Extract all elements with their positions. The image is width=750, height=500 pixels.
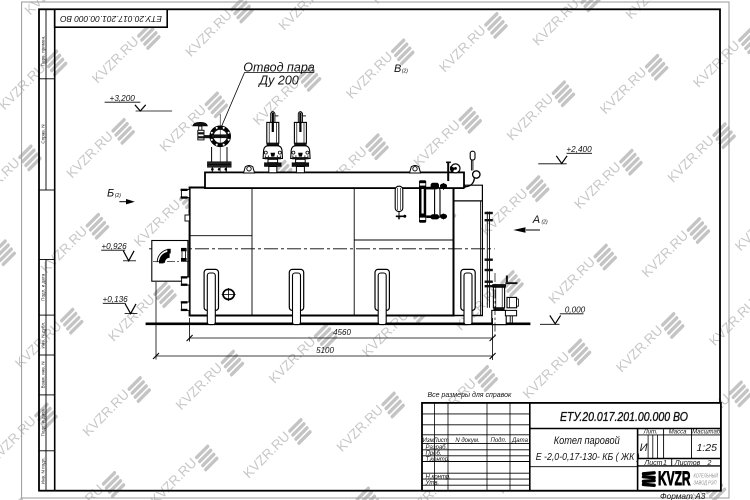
svg-text:Изм: Изм bbox=[423, 438, 434, 444]
svg-text:Подп. и дата: Подп. и дата bbox=[41, 409, 46, 437]
svg-text:KVZR.RU: KVZR.RU bbox=[436, 22, 489, 75]
svg-text:KVZR.RU: KVZR.RU bbox=[520, 349, 573, 402]
svg-text:KVZR.RU: KVZR.RU bbox=[504, 91, 557, 144]
svg-text:KVZR.RU: KVZR.RU bbox=[63, 128, 116, 181]
svg-text:И: И bbox=[640, 442, 648, 454]
svg-text:KVZR.RU: KVZR.RU bbox=[623, 0, 676, 22]
svg-text:Т.контр.: Т.контр. bbox=[426, 457, 450, 463]
svg-text:Справ. N: Справ. N bbox=[41, 124, 46, 143]
svg-text:Масса: Масса bbox=[669, 430, 687, 436]
svg-text:Инв. N подл.: Инв. N подл. bbox=[41, 457, 46, 484]
svg-text:Е -2,0-0,17-130- КБ ( ЖК ): Е -2,0-0,17-130- КБ ( ЖК ) bbox=[536, 451, 640, 463]
svg-text:В: В bbox=[394, 63, 401, 75]
svg-text:Подп.: Подп. bbox=[491, 438, 507, 444]
svg-text:+0,136: +0,136 bbox=[102, 295, 128, 304]
svg-text:Лит.: Лит. bbox=[643, 430, 658, 436]
svg-text:KVZR.RU: KVZR.RU bbox=[664, 133, 717, 186]
svg-text:Взам. инв. N: Взам. инв. N bbox=[41, 361, 46, 388]
svg-text:1: 1 bbox=[663, 460, 667, 467]
svg-text:KVZR.RU: KVZR.RU bbox=[240, 429, 293, 482]
svg-text:Котел паровой: Котел паровой bbox=[554, 435, 620, 447]
svg-text:N докум.: N докум. bbox=[455, 438, 479, 444]
svg-text:Листов: Листов bbox=[674, 460, 701, 467]
svg-text:KVZR.RU: KVZR.RU bbox=[266, 334, 319, 387]
svg-text:KVZR.RU: KVZR.RU bbox=[639, 228, 692, 281]
svg-text:Масштаб: Масштаб bbox=[692, 430, 721, 436]
svg-text:КОТЕЛЬНЫЙ: КОТЕЛЬНЫЙ bbox=[694, 472, 719, 480]
svg-text:KVZR.RU: KVZR.RU bbox=[732, 201, 750, 254]
svg-text:Инв. N дубл.: Инв. N дубл. bbox=[41, 322, 46, 349]
svg-text:KVZR.RU: KVZR.RU bbox=[0, 60, 48, 113]
svg-text:KVZR.RU: KVZR.RU bbox=[0, 413, 39, 466]
svg-text:KVZR.RU: KVZR.RU bbox=[147, 455, 200, 500]
svg-text:KVZR.RU: KVZR.RU bbox=[411, 117, 464, 170]
svg-text:KVZR.RU: KVZR.RU bbox=[613, 323, 666, 376]
svg-text:Утв.: Утв. bbox=[425, 481, 440, 487]
svg-text:KVZR.RU: KVZR.RU bbox=[369, 0, 422, 7]
svg-text:KVZR.RU: KVZR.RU bbox=[343, 49, 396, 102]
svg-text:KVZR.RU: KVZR.RU bbox=[571, 159, 624, 212]
svg-text:(2): (2) bbox=[115, 193, 121, 199]
svg-text:ЗАВОД РЭП: ЗАВОД РЭП bbox=[694, 481, 717, 487]
svg-text:ЕТУ.20.017.201.00.000 ВО: ЕТУ.20.017.201.00.000 ВО bbox=[60, 14, 162, 24]
svg-text:4560: 4560 bbox=[333, 328, 351, 337]
svg-text:KVZR: KVZR bbox=[658, 468, 691, 490]
svg-text:Ду 200: Ду 200 bbox=[257, 74, 299, 88]
svg-text:1:25: 1:25 bbox=[696, 442, 717, 454]
svg-text:(2): (2) bbox=[402, 69, 408, 75]
svg-text:А: А bbox=[532, 214, 540, 226]
svg-text:KVZR.RU: KVZR.RU bbox=[276, 0, 329, 33]
svg-text:Перв. примен.: Перв. примен. bbox=[41, 36, 46, 67]
svg-text:Лист: Лист bbox=[432, 438, 448, 444]
svg-text:(2): (2) bbox=[542, 220, 548, 226]
svg-text:KVZR.RU: KVZR.RU bbox=[546, 254, 599, 307]
svg-text:KVZR.RU: KVZR.RU bbox=[173, 360, 226, 413]
svg-text:KVZR.RU: KVZR.RU bbox=[706, 296, 750, 349]
svg-text:Формат А3: Формат А3 bbox=[660, 491, 706, 500]
svg-text:KVZR.RU: KVZR.RU bbox=[89, 34, 142, 87]
svg-text:Б: Б bbox=[107, 187, 114, 199]
svg-text:ЕТУ.20.017.201.00.000 ВО: ЕТУ.20.017.201.00.000 ВО bbox=[560, 409, 688, 424]
svg-text:Подп. и дата: Подп. и дата bbox=[41, 273, 46, 301]
svg-text:KVZR.RU: KVZR.RU bbox=[0, 155, 23, 208]
svg-text:Все размеры для справок: Все размеры для справок bbox=[428, 391, 513, 399]
svg-text:KVZR.RU: KVZR.RU bbox=[597, 64, 650, 117]
svg-text:Лист: Лист bbox=[643, 460, 662, 467]
svg-text:2: 2 bbox=[707, 460, 712, 467]
svg-text:Дата: Дата bbox=[511, 438, 528, 444]
svg-text:KVZR.RU: KVZR.RU bbox=[333, 402, 386, 455]
svg-text:+2,400: +2,400 bbox=[566, 145, 592, 154]
svg-text:0,000: 0,000 bbox=[565, 306, 586, 315]
svg-text:KVZR.RU: KVZR.RU bbox=[529, 0, 582, 48]
svg-text:5100: 5100 bbox=[316, 346, 334, 355]
svg-text:KVZR.RU: KVZR.RU bbox=[182, 7, 235, 60]
svg-text:KVZR.RU: KVZR.RU bbox=[690, 38, 743, 91]
svg-text:KVZR.RU: KVZR.RU bbox=[80, 387, 133, 440]
